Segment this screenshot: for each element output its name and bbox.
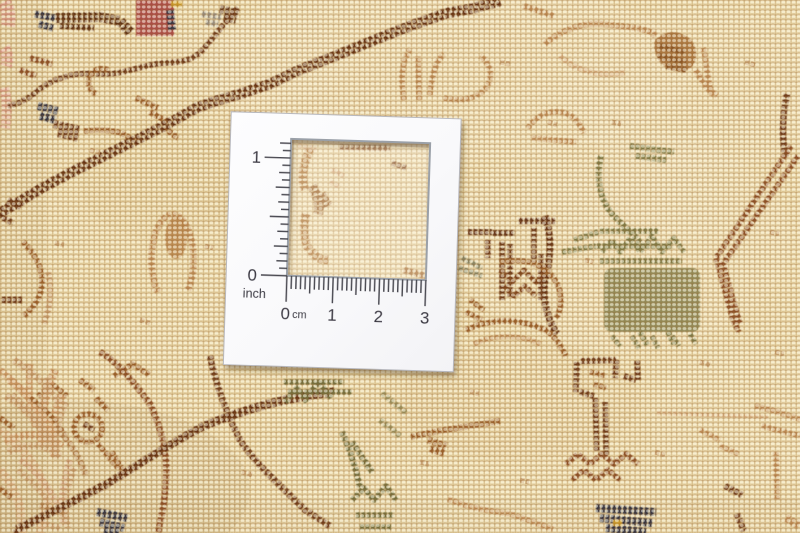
svg-text:2: 2	[373, 307, 383, 326]
svg-text:1: 1	[327, 305, 337, 324]
svg-text:cm: cm	[292, 309, 307, 321]
svg-text:0: 0	[247, 266, 257, 285]
svg-text:inch: inch	[243, 286, 267, 301]
svg-text:3: 3	[420, 308, 430, 327]
svg-text:1: 1	[251, 148, 261, 167]
svg-text:0: 0	[280, 304, 290, 323]
